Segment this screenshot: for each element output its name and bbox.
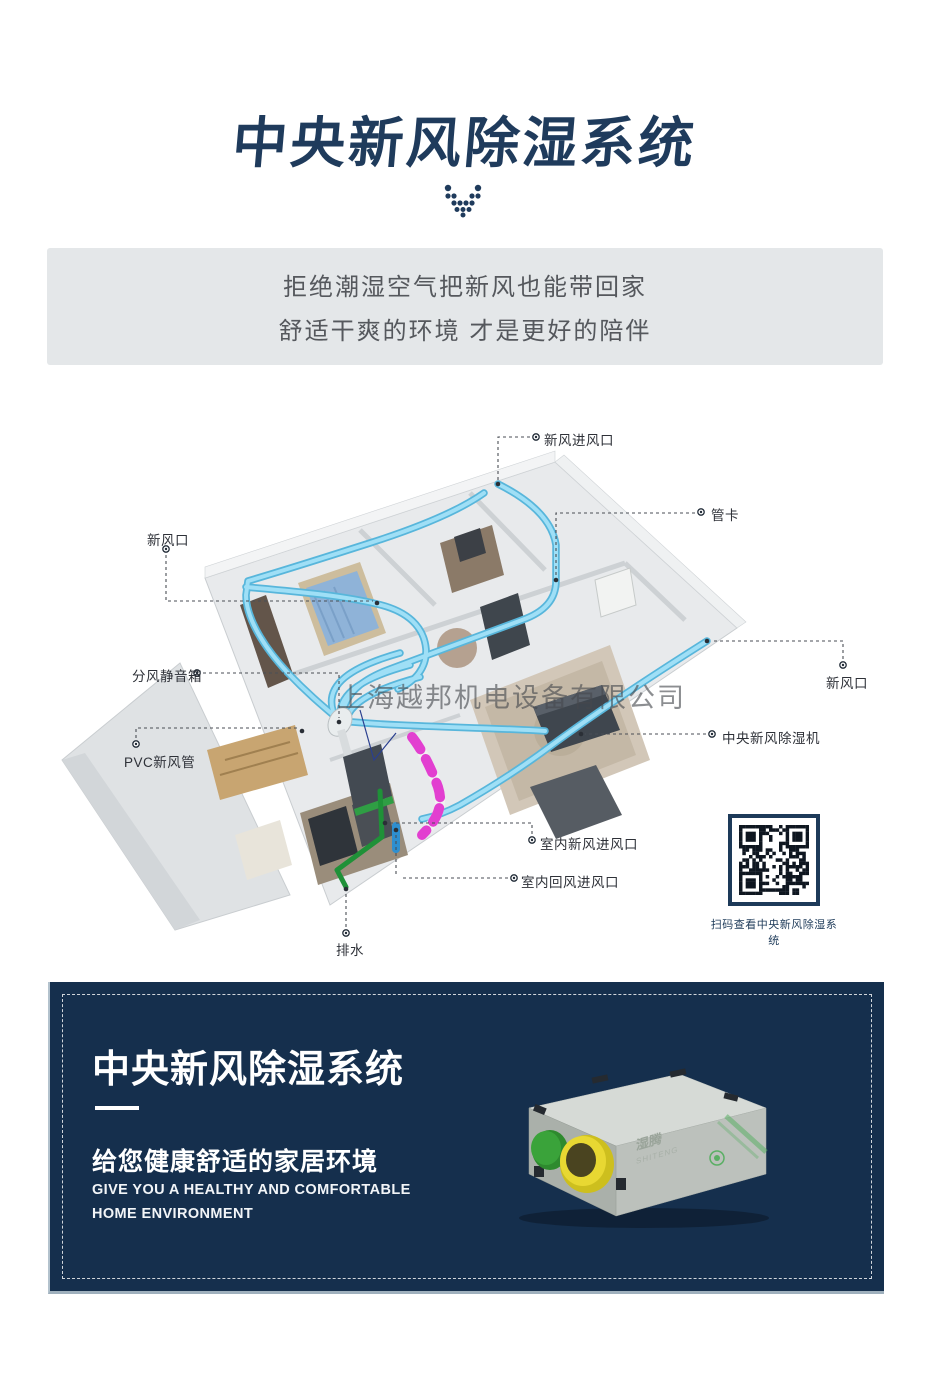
footer-tagline-en-1: GIVE YOU A HEALTHY AND COMFORTABLE [92, 1182, 411, 1198]
footer-subtitle: 给您健康舒适的家居环境 [92, 1142, 378, 1178]
label-indoor-return-inlet: 室内回风进风口 [521, 871, 619, 891]
footer-title-underline [95, 1106, 139, 1110]
footer-tagline-en-2: HOME ENVIRONMENT [92, 1206, 253, 1222]
label-central-unit: 中央新风除湿机 [722, 727, 820, 747]
label-drain: 排水 [336, 939, 364, 959]
slogan-line-1: 拒绝潮湿空气把新风也能带回家 [283, 267, 647, 302]
label-pvc-duct: PVC新风管 [124, 751, 195, 771]
label-indoor-fresh-inlet: 室内新风进风口 [540, 833, 638, 853]
label-air-silencer-box: 分风静音箱 [132, 665, 202, 685]
page: 中央新风除湿系统 拒绝潮湿空气把新风也能带回家 舒适干爽的环境 才是更好的陪伴 [0, 0, 930, 1386]
v-dots-logo-icon [444, 184, 484, 218]
slogan-line-2: 舒适干爽的环境 才是更好的陪伴 [279, 311, 652, 346]
product-unit-image: 湿腾 SHITENG [474, 1066, 784, 1236]
qr-caption: 扫码查看中央新风除湿系统 [708, 916, 840, 948]
qr-code [728, 814, 820, 906]
page-title: 中央新风除湿系统 [0, 98, 930, 178]
footer-panel: 中央新风除湿系统 给您健康舒适的家居环境 GIVE YOU A HEALTHY … [48, 982, 884, 1294]
label-fresh-air-vent-left: 新风口 [147, 529, 189, 549]
slogan-banner: 拒绝潮湿空气把新风也能带回家 舒适干爽的环境 才是更好的陪伴 [47, 248, 883, 365]
footer-title: 中央新风除湿系统 [92, 1038, 404, 1093]
company-watermark: 上海越邦机电设备有限公司 [338, 676, 686, 715]
label-fresh-air-vent-right: 新风口 [826, 672, 868, 692]
label-fresh-air-intake: 新风进风口 [544, 429, 614, 449]
label-pipe-clamp: 管卡 [711, 504, 739, 524]
